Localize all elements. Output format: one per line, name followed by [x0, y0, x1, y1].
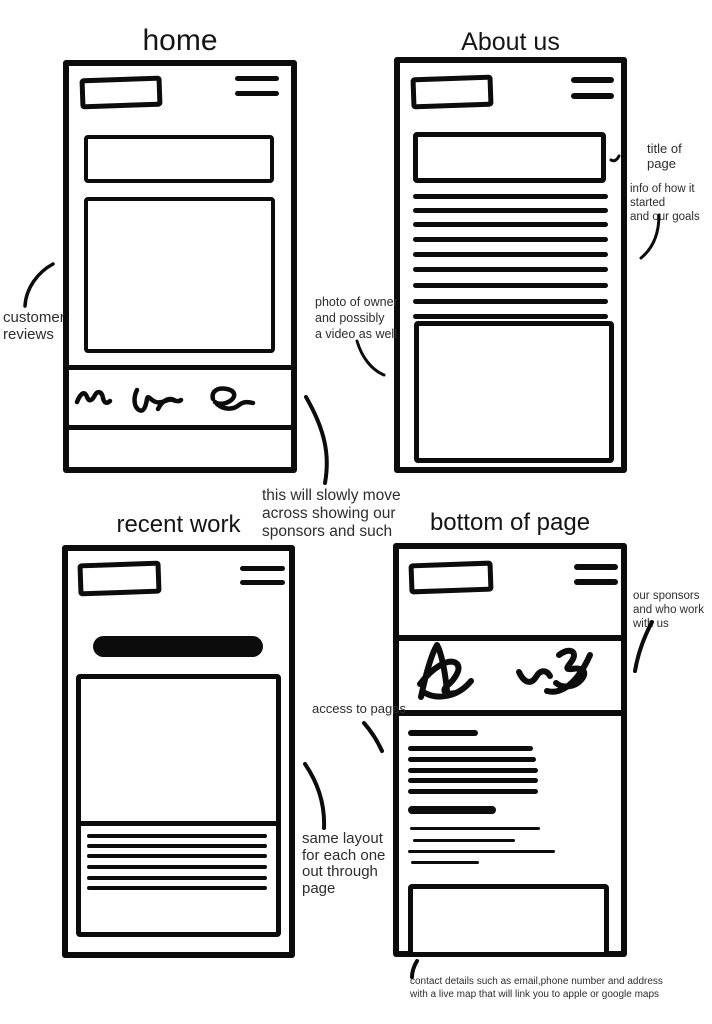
annotation-customer-reviews: customer reviews — [3, 309, 65, 343]
text-line — [413, 237, 608, 242]
menu-icon-bar — [574, 564, 618, 570]
text-line — [87, 834, 267, 838]
text-line — [408, 757, 536, 762]
text-line — [408, 768, 538, 773]
annotation-photo-owner: photo of owner and possibly a video as w… — [315, 294, 398, 342]
logo-placeholder — [410, 75, 493, 110]
menu-icon-bar — [240, 566, 285, 571]
leader-line-customer-reviews — [25, 264, 53, 306]
annotation-contact-details: contact details such as email,phone numb… — [410, 975, 663, 1001]
page-title-placeholder — [413, 132, 606, 183]
text-line-thin — [411, 861, 479, 864]
leader-line-sponsor-ticker — [306, 397, 327, 483]
page-title-bottom: bottom of page — [393, 509, 627, 537]
menu-icon-bar — [235, 91, 279, 96]
text-line — [413, 252, 608, 257]
logo-placeholder — [79, 76, 162, 110]
text-line — [413, 208, 608, 213]
annotation-same-layout: same layout for each one out through pag… — [302, 831, 385, 897]
text-line — [413, 194, 608, 199]
text-line-thin — [408, 850, 555, 853]
leader-line-access-pages — [364, 723, 382, 751]
text-line — [87, 865, 267, 869]
menu-icon — [574, 562, 618, 587]
text-line — [408, 778, 538, 783]
text-line-thin — [413, 839, 515, 842]
section-divider — [66, 425, 294, 430]
page-title-recent: recent work — [62, 511, 295, 539]
menu-icon-bar — [235, 76, 279, 81]
annotation-access-pages: access to pages — [312, 701, 406, 716]
contact-map-placeholder — [408, 884, 609, 957]
logo-placeholder — [408, 561, 493, 595]
text-line — [87, 886, 267, 890]
menu-icon — [240, 564, 285, 587]
text-line — [413, 222, 608, 227]
text-line — [87, 854, 267, 858]
leader-line-same-layout — [305, 764, 324, 828]
section-divider — [396, 710, 624, 716]
annotation-title-of-page: title of page — [647, 141, 712, 171]
footer-heading-line — [408, 806, 496, 814]
text-line — [413, 267, 608, 272]
page-title-home: home — [63, 24, 297, 58]
menu-icon — [571, 75, 614, 101]
text-line — [408, 789, 538, 794]
owner-photo-placeholder — [84, 197, 275, 353]
menu-icon-bar — [571, 77, 614, 83]
hero-banner-placeholder — [84, 135, 274, 183]
section-divider — [396, 635, 624, 641]
annotation-info-started: info of how it started and our goals — [630, 182, 712, 224]
text-line — [413, 314, 608, 319]
card-photo-divider — [81, 821, 276, 826]
leader-line-photo-owner — [357, 341, 384, 375]
logo-placeholder — [77, 561, 161, 597]
work-card-placeholder — [76, 674, 281, 937]
menu-icon-bar — [240, 580, 285, 585]
text-line-thin — [410, 827, 540, 830]
footer-heading-line — [408, 730, 478, 736]
menu-icon-bar — [574, 579, 618, 585]
heading-pill-placeholder — [93, 636, 263, 657]
text-line — [87, 844, 267, 848]
page-title-about: About us — [394, 28, 627, 57]
annotation-sponsor-ticker: this will slowly move across showing our… — [262, 487, 401, 541]
annotation-our-sponsors: our sponsors and who work with us — [633, 589, 712, 631]
text-line — [413, 283, 608, 288]
menu-icon-bar — [571, 93, 614, 99]
wireframe-sketch-canvas: home About us recent work bottom of page — [0, 0, 712, 1024]
text-line — [408, 746, 533, 751]
photo-video-placeholder — [414, 321, 614, 463]
section-divider — [66, 365, 294, 370]
text-line — [413, 299, 608, 304]
menu-icon — [235, 74, 279, 98]
text-line — [87, 876, 267, 880]
